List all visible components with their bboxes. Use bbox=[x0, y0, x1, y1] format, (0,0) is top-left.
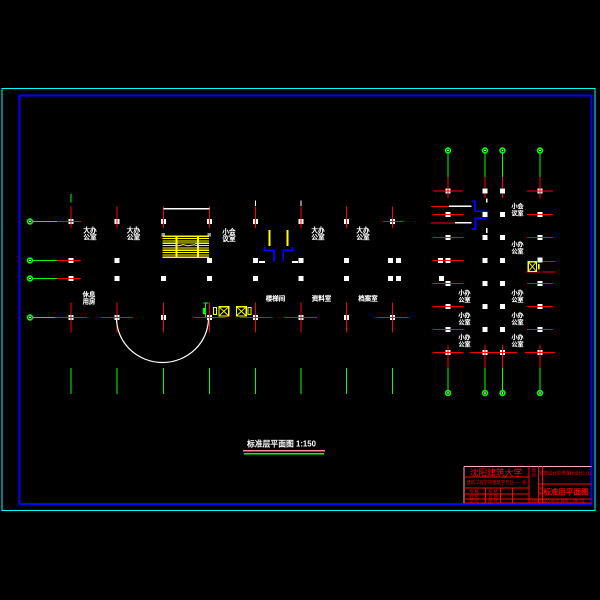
svg-text:建筑设计原理课程设计1-01: 建筑设计原理课程设计1-01 bbox=[540, 470, 592, 477]
svg-text:公室: 公室 bbox=[458, 296, 470, 304]
svg-text:大办: 大办 bbox=[127, 225, 141, 234]
svg-text:标准层平面图: 标准层平面图 bbox=[542, 487, 589, 497]
svg-text:公室: 公室 bbox=[458, 319, 470, 327]
svg-text:公室: 公室 bbox=[511, 319, 523, 327]
svg-text:学 号: 学 号 bbox=[469, 497, 479, 504]
svg-text:用房: 用房 bbox=[83, 297, 96, 306]
svg-text:建筑工程学院建筑学专业——班: 建筑工程学院建筑学专业——班 bbox=[466, 479, 527, 486]
svg-text:公室: 公室 bbox=[83, 233, 97, 242]
svg-text:议室: 议室 bbox=[511, 210, 523, 218]
svg-text:档案室: 档案室 bbox=[358, 294, 378, 303]
svg-text:大办: 大办 bbox=[83, 225, 97, 234]
svg-text:比例 1:150 图别 建施 日期 06: 比例 1:150 图别 建施 日期 06 bbox=[530, 497, 585, 504]
svg-text:楼梯间: 楼梯间 bbox=[266, 294, 286, 303]
svg-text:小办: 小办 bbox=[458, 311, 470, 319]
svg-text:公室: 公室 bbox=[127, 233, 141, 242]
svg-text:小办: 小办 bbox=[458, 289, 470, 297]
svg-text:小会: 小会 bbox=[222, 227, 236, 236]
svg-text:公室: 公室 bbox=[458, 341, 470, 349]
svg-text:小办: 小办 bbox=[458, 333, 470, 341]
svg-text:资料室: 资料室 bbox=[312, 294, 332, 303]
svg-text:公室: 公室 bbox=[356, 233, 370, 242]
svg-text:标准层平面图 1:150: 标准层平面图 1:150 bbox=[246, 439, 317, 449]
svg-text:小会: 小会 bbox=[511, 202, 523, 210]
svg-text:公室: 公室 bbox=[511, 248, 523, 256]
svg-text:公室: 公室 bbox=[511, 296, 523, 304]
svg-text:议室: 议室 bbox=[222, 234, 236, 243]
svg-text:公室: 公室 bbox=[511, 341, 523, 349]
svg-text:休息: 休息 bbox=[83, 289, 96, 298]
svg-text:大办: 大办 bbox=[311, 225, 325, 234]
svg-text:大办: 大办 bbox=[356, 225, 370, 234]
svg-text:小办: 小办 bbox=[511, 240, 523, 248]
svg-text:沈阳建筑大学: 沈阳建筑大学 bbox=[470, 466, 523, 477]
svg-text:小办: 小办 bbox=[511, 289, 523, 297]
svg-text:小办: 小办 bbox=[511, 311, 523, 319]
svg-text:小办: 小办 bbox=[511, 333, 523, 341]
svg-text:别: 别 bbox=[531, 472, 535, 479]
svg-text:公室: 公室 bbox=[311, 233, 325, 242]
